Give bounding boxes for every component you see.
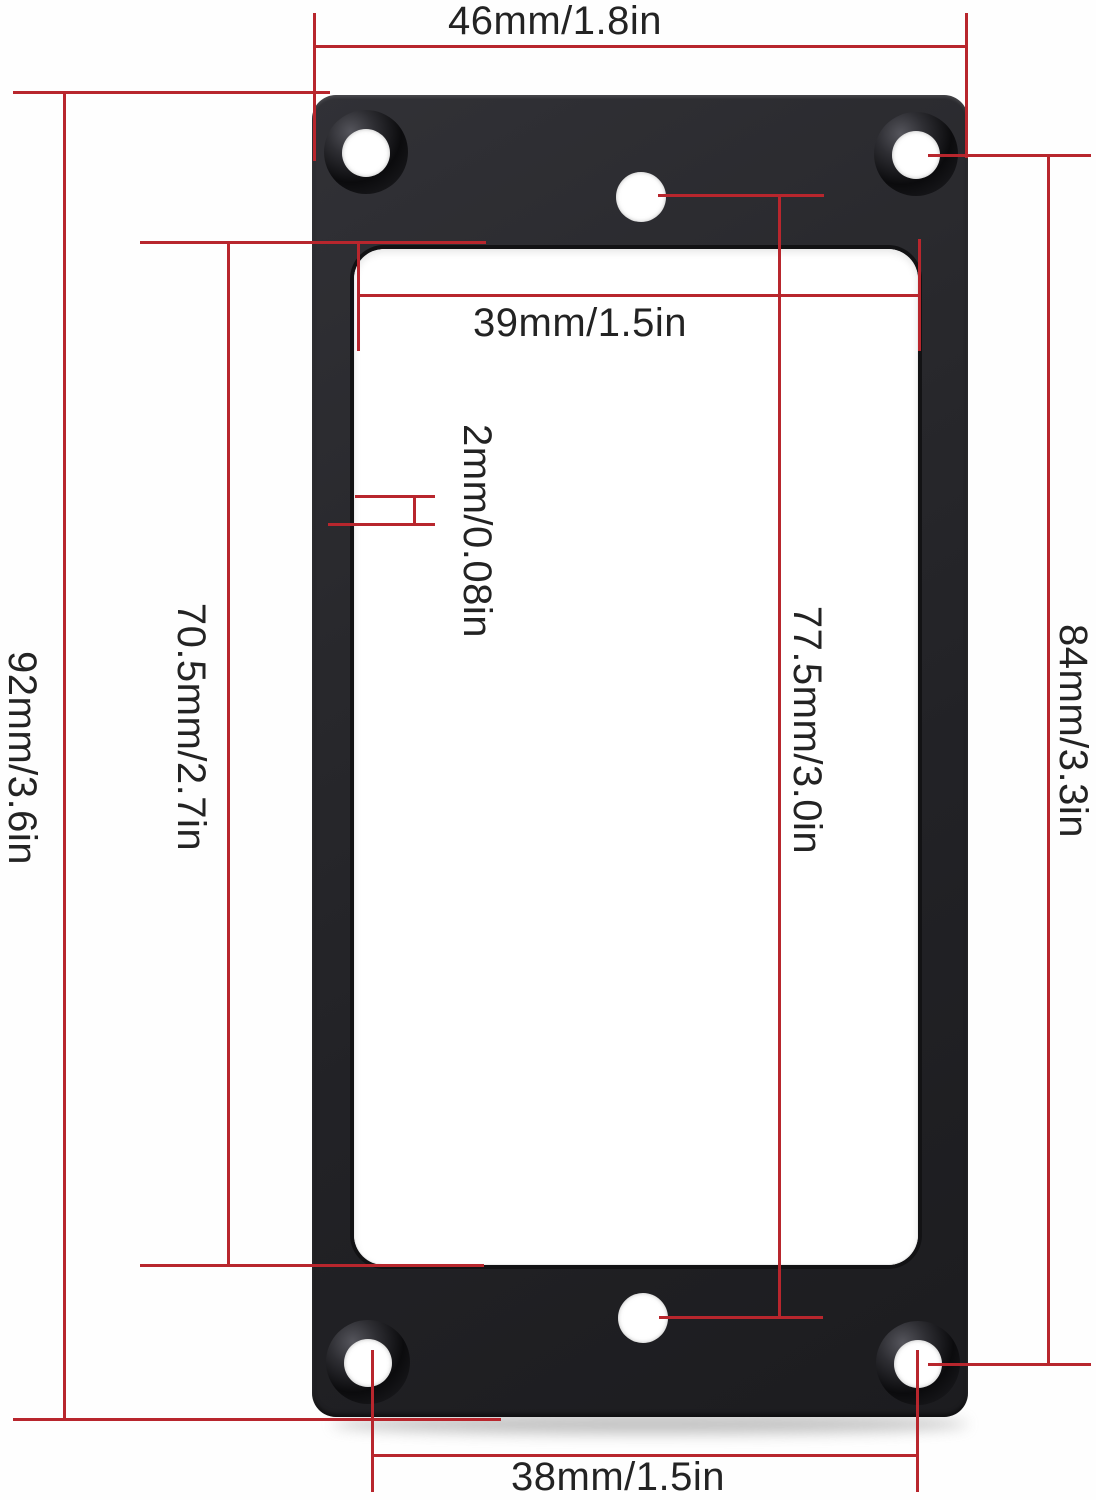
pickup-ring-opening [354,249,918,1265]
conn-line-screw-height-bottom [928,1363,1091,1366]
dim-line-inner-width [358,294,921,297]
screw-hole-top-left [324,110,408,194]
rim-thickness-lower-line [328,523,435,526]
dim-label-inner-width: 39mm/1.5in [473,303,687,343]
ext-line-screw-width-right [916,1350,919,1492]
ref-line-outer-height-bottom [13,1418,501,1421]
dim-label-center-hole-spacing: 77.5mm/3.0in [787,606,827,854]
screw-hole-bottom-left-bore [344,1339,392,1387]
ref-line-inner-height-bottom [140,1264,484,1267]
rim-thickness-upper-line [355,495,435,498]
screw-hole-bottom-left [326,1320,410,1404]
dimension-diagram-canvas: 46mm/1.8in 39mm/1.5in 2mm/0.08in 70.5mm/… [0,0,1096,1500]
dim-label-screw-hole-width: 38mm/1.5in [511,1457,725,1497]
tick-inner-width-left [357,241,360,351]
center-mounting-hole-top [616,172,666,222]
conn-line-screw-height-top [928,154,1091,157]
dim-line-screw-hole-height [1047,154,1050,1366]
ext-line-screw-width-left [371,1350,374,1492]
dim-label-inner-height: 70.5mm/2.7in [171,603,211,851]
tick-inner-width-right [918,239,921,351]
ext-line-outer-width-left [313,13,316,161]
dim-line-outer-width [313,45,967,48]
ref-line-outer-height-top [13,91,330,94]
screw-hole-top-left-bore [342,129,390,177]
rim-thickness-connector [413,495,416,526]
plate-drop-shadow [332,1414,968,1434]
conn-line-center-holes-top [658,194,824,197]
dim-label-outer-width: 46mm/1.8in [448,1,662,41]
dim-line-outer-height [63,91,66,1421]
dim-line-center-hole-spacing [778,194,781,1318]
dim-label-screw-hole-height: 84mm/3.3in [1053,624,1093,838]
dim-label-outer-height: 92mm/3.6in [2,651,42,865]
dim-label-rim-thickness: 2mm/0.08in [457,424,497,638]
ext-line-outer-width-right [965,13,968,158]
conn-line-center-holes-bottom [659,1316,823,1319]
ref-line-inner-height-top [140,241,486,244]
dim-line-inner-height [227,241,230,1267]
